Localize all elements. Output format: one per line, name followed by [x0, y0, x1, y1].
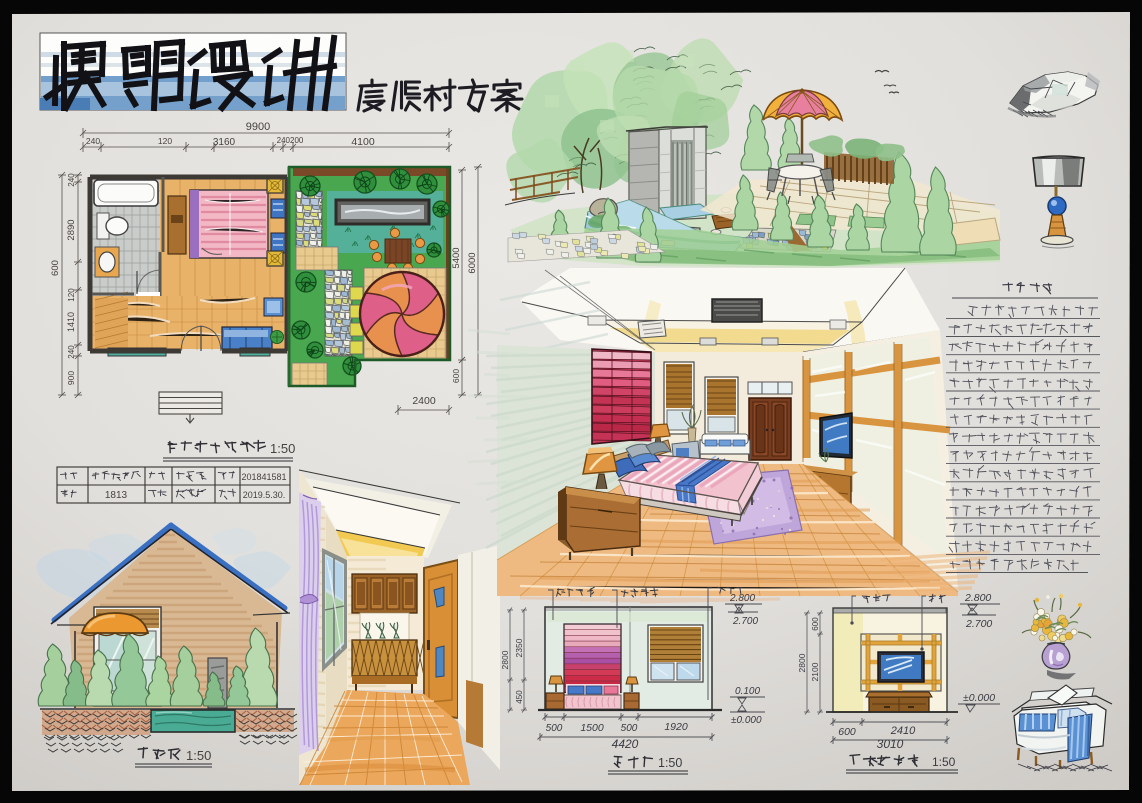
svg-text:600: 600 [811, 617, 820, 631]
svg-text:1410: 1410 [66, 312, 76, 332]
svg-text:2.800: 2.800 [964, 592, 991, 604]
svg-text:240200: 240200 [277, 136, 304, 145]
svg-text:1:50: 1:50 [658, 756, 682, 770]
svg-text:1813: 1813 [105, 490, 128, 501]
svg-text:2800: 2800 [797, 653, 807, 672]
svg-text:240: 240 [67, 345, 76, 359]
svg-text:3160: 3160 [213, 137, 236, 148]
svg-text:2.800: 2.800 [729, 593, 755, 604]
svg-text:2400: 2400 [412, 395, 436, 407]
svg-text:5400: 5400 [451, 247, 462, 268]
svg-text:600: 600 [50, 260, 61, 276]
svg-text:9900: 9900 [246, 121, 270, 133]
svg-text:3010: 3010 [877, 737, 904, 751]
svg-text:1920: 1920 [664, 721, 688, 733]
svg-text:120: 120 [158, 136, 172, 146]
svg-text:450: 450 [515, 690, 524, 704]
svg-text:240: 240 [86, 136, 100, 146]
svg-text:0.100: 0.100 [735, 686, 760, 697]
svg-text:120: 120 [67, 288, 76, 302]
svg-text:±0.000: ±0.000 [731, 715, 762, 726]
svg-text:2410: 2410 [890, 725, 916, 737]
svg-text:1:50: 1:50 [270, 441, 295, 456]
svg-text:2.700: 2.700 [965, 618, 992, 630]
svg-text:2100: 2100 [810, 662, 820, 681]
svg-text:2019.5.30.: 2019.5.30. [243, 490, 286, 500]
svg-text:2.700: 2.700 [732, 616, 758, 627]
svg-text:4420: 4420 [612, 737, 639, 751]
svg-text:600: 600 [451, 369, 461, 383]
svg-text:1500: 1500 [580, 722, 604, 734]
svg-text:600: 600 [838, 726, 856, 738]
svg-text:6000: 6000 [467, 252, 478, 273]
svg-text:1:50: 1:50 [186, 748, 211, 763]
svg-text:2890: 2890 [66, 219, 77, 240]
svg-text:4100: 4100 [351, 136, 375, 148]
svg-text:2350: 2350 [514, 638, 524, 657]
svg-text:500: 500 [621, 723, 638, 734]
svg-text:900: 900 [66, 371, 76, 385]
svg-text:2800: 2800 [500, 650, 510, 669]
svg-text:500: 500 [546, 723, 563, 734]
svg-text:240: 240 [67, 173, 76, 187]
svg-text:201841581: 201841581 [241, 472, 286, 482]
svg-text:1:50: 1:50 [932, 755, 956, 769]
svg-text:±0.000: ±0.000 [963, 692, 995, 704]
